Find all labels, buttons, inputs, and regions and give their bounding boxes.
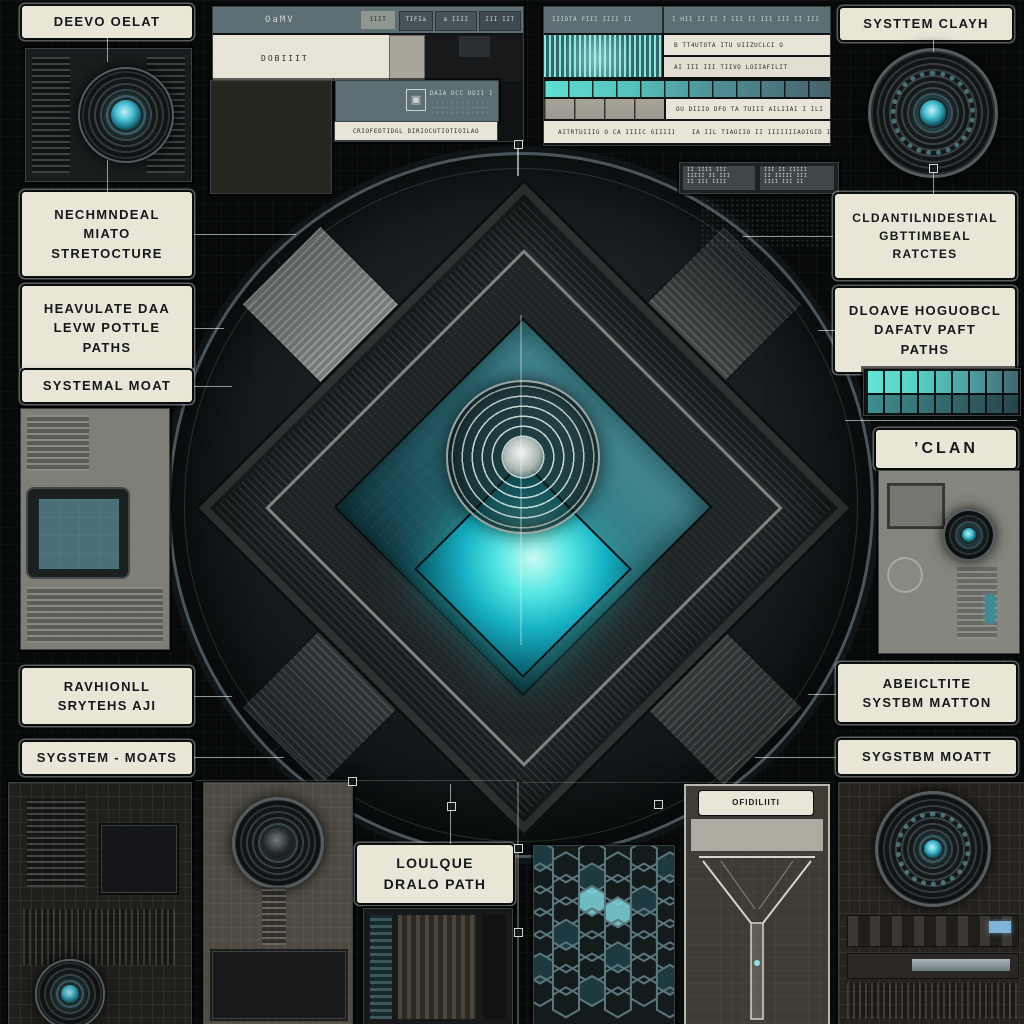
lens-icon	[35, 959, 105, 1024]
console-screen	[38, 498, 120, 570]
annotation-top-left: DEEVO OELAT	[22, 6, 192, 38]
axis-line	[520, 315, 522, 645]
callout-line	[107, 38, 108, 62]
lens-core-icon	[960, 526, 978, 544]
annotation-right-3: ABEICLTITE SYSTBM MATTON	[838, 664, 1016, 722]
hex-mesh-icon	[534, 846, 674, 1024]
chip-text: DAIA DCC DDII I	[430, 90, 492, 97]
central-ring	[168, 152, 874, 858]
callout-line	[107, 160, 108, 192]
annotation-text: OFIDILIITI	[699, 797, 813, 809]
circuit-board-module	[878, 470, 1020, 654]
module-tower	[32, 57, 70, 173]
panel-b-header-right: I HII II II I III II III III II III	[664, 7, 830, 33]
circuit-block	[889, 485, 943, 527]
annotation-text: SRYTEHS AJI	[22, 696, 192, 716]
annotation-text: SYSTEMAL MOAT	[22, 376, 192, 396]
machinery-block	[101, 825, 177, 893]
bottom-left-machinery	[8, 782, 192, 1024]
connector-marker	[348, 777, 357, 786]
callout-line	[755, 757, 836, 758]
light-bar	[912, 959, 1010, 971]
chip-grid-icon: ▣	[406, 89, 426, 111]
left-sensor-module	[25, 48, 192, 182]
machinery-bar-row	[847, 953, 1019, 979]
hex-mesh-panel	[533, 845, 675, 1024]
meter-row-bottom	[866, 395, 1018, 413]
sub-panel-cell: III II IIIII II IIIII III IIII III II	[760, 166, 834, 190]
annotation-text: DRALO PATH	[357, 874, 513, 895]
annotation-left-3: SYSTEMAL MOAT	[22, 370, 192, 402]
teal-meter-bar	[863, 368, 1021, 416]
panel-b-row4: AITRTUIIIG O CA IIIIC GIIIIII IA IIL TIA…	[544, 121, 830, 143]
annotation-text: SYGSTEM - MOATS	[22, 748, 192, 768]
large-lens-icon	[868, 48, 998, 178]
panel-a-footer-text: CRIOFEDTIDGL DIRIOCUTIOTIOILAO	[353, 128, 479, 135]
annotation-bottom-center: LOULQUE DRALO PATH	[357, 845, 513, 903]
callout-line	[808, 694, 836, 695]
annotation-text: DAFATV PAFT	[835, 320, 1015, 340]
annotation-text: CLDANTILNIDESTIAL	[835, 209, 1015, 227]
machinery-pipe	[262, 887, 286, 945]
annotation-text: RAVHIONLL	[22, 677, 192, 697]
lens-core-icon	[59, 983, 80, 1004]
gray-segmented-row	[544, 99, 664, 119]
callout-line	[818, 330, 835, 331]
annotation-text: PATHS	[22, 338, 192, 358]
citadel-hub-ring	[446, 380, 600, 534]
annotation-text: STRETOCTURE	[22, 244, 192, 264]
callout-line	[450, 784, 451, 844]
bottom-machinery-2	[203, 782, 353, 1024]
striped-column	[398, 915, 476, 1019]
lens-core-icon	[261, 826, 295, 860]
lens-core-icon	[109, 98, 144, 133]
lens-core-icon	[922, 838, 944, 860]
divider-line	[517, 782, 519, 1024]
ghost-port-icon	[887, 557, 923, 593]
callout-line	[194, 328, 224, 329]
sub-data-panel: II IIII III IIIII II III II III IIII III…	[679, 162, 839, 194]
funnel-diagram-icon	[691, 851, 823, 1023]
citadel-arm-ne-sw	[241, 225, 802, 786]
large-lens-icon	[875, 791, 991, 907]
bottom-center-machinery	[363, 908, 513, 1024]
callout-line	[743, 236, 833, 237]
annotation-text: RATCTES	[835, 245, 1015, 263]
header-cell: a IIII	[435, 11, 477, 31]
annotation-text: NECHMNDEAL	[22, 205, 192, 225]
machinery-block	[27, 799, 85, 887]
panel-a-row-label: DOBIIIT	[261, 54, 309, 63]
panel-a-footer-bar: CRIOFEDTIDGL DIRIOCUTIOTIOILAO	[335, 122, 497, 140]
annotation-right-4: SYGSTBM MOATT	[838, 740, 1016, 774]
panel-b-row3: OU DIIIO DFO TA TUIII AILIIAI I ILI	[666, 99, 830, 119]
dot-mesh-texture	[700, 198, 832, 248]
panel-a-gray-cells	[389, 35, 425, 81]
left-console-module	[20, 408, 170, 650]
annotation-text: GBTTIMBEAL	[835, 227, 1015, 245]
callout-line	[194, 386, 232, 387]
annotation-text: DEEVO OELAT	[22, 12, 192, 32]
teal-striped-column	[370, 915, 392, 1019]
panel-a-dark-cells	[425, 35, 523, 81]
striped-block	[210, 80, 332, 194]
annotation-left-5: SYGSTEM - MOATS	[22, 742, 192, 774]
funnel-blueprint-panel: OFIDILIITI	[686, 786, 828, 1024]
connector-marker	[514, 928, 523, 937]
connector-marker	[654, 800, 663, 809]
meter-row-top	[866, 371, 1018, 393]
panel-b-header-left: IIIDTA FIII IIII II	[544, 7, 664, 33]
funnel-header-ticks	[691, 819, 823, 851]
lens-core-icon	[918, 98, 948, 128]
annotation-text: DLOAVE HOGUOBCL	[835, 301, 1015, 321]
citadel-glass-deck	[333, 317, 712, 696]
connector-marker	[447, 802, 456, 811]
panel-a-title: OaMV	[265, 15, 295, 25]
callout-line	[194, 696, 232, 697]
sci-fi-citadel-diagram: DEEVO OELAT SYSTTEM CLAYH OaMV IIIT TIFI…	[0, 0, 1024, 1024]
citadel-rim-walkway	[265, 249, 783, 767]
annotation-text: ’CLAN	[876, 437, 1016, 461]
lens-icon	[78, 67, 174, 163]
panel-a-chip-strip: ▣ DAIA DCC DDII I	[335, 80, 499, 122]
machinery-grid	[847, 983, 1017, 1019]
sub-panel-cell: II IIII III IIIII II III II III IIII	[683, 166, 755, 190]
callout-line	[933, 40, 934, 52]
teal-indicator	[985, 595, 995, 623]
teal-gradient-row	[544, 81, 830, 97]
annotation-text: HEAVULATE DAA	[22, 299, 192, 319]
console-vent	[27, 415, 89, 471]
header-cell: TIFIa	[399, 11, 433, 31]
machinery-block	[23, 909, 175, 965]
annotation-left-4: RAVHIONLL SRYTEHS AJI	[22, 668, 192, 724]
hub-core	[503, 437, 543, 477]
annotation-text: PATHS	[835, 340, 1015, 360]
annotation-text: MIATO	[22, 224, 192, 244]
annotation-text: SYSTTEM CLAYH	[840, 14, 1012, 34]
annotation-top-right: SYSTTEM CLAYH	[840, 8, 1012, 40]
panel-a-header: OaMV IIIT TIFIa a IIII III IIT	[213, 7, 523, 33]
header-cell: III IIT	[479, 11, 521, 31]
panel-b-row1: B TT4UTOTA ITU UIIZUCLCI O	[664, 35, 830, 55]
panel-a-row: DOBIIIT	[213, 35, 389, 81]
callout-line	[194, 757, 284, 758]
annotation-text: SYSTBM MATTON	[838, 693, 1016, 713]
annotation-text: ABEICLTITE	[838, 674, 1016, 694]
connector-marker	[929, 164, 938, 173]
annotation-right-1: CLDANTILNIDESTIAL GBTTIMBEAL RATCTES	[835, 194, 1015, 278]
large-lens-icon	[232, 797, 324, 889]
annotation-text: LOULQUE	[357, 853, 513, 874]
connector-marker	[514, 844, 523, 853]
data-panel-b: IIIDTA FIII IIII II I HII II II I III II…	[543, 6, 831, 146]
funnel-tag: OFIDILIITI	[699, 791, 813, 815]
chip-dot-grid	[430, 100, 490, 114]
citadel-arm-nw-se	[241, 225, 802, 786]
small-lens-icon	[943, 509, 995, 561]
callout-line	[194, 234, 296, 235]
annotation-left-1: NECHMNDEAL MIATO STRETOCTURE	[22, 192, 192, 276]
connector-marker	[514, 140, 523, 149]
divider-line	[522, 782, 830, 783]
machinery-grid	[212, 951, 346, 1019]
citadel-outer-wall	[194, 178, 853, 837]
teal-striped-cell	[544, 35, 662, 77]
energy-pit	[414, 460, 632, 678]
blue-indicator	[989, 921, 1011, 933]
annotation-clan: ’CLAN	[876, 430, 1016, 468]
annotation-right-2: DLOAVE HOGUOBCL DAFATV PAFT PATHS	[835, 288, 1015, 372]
annotation-text: LEVW POTTLE	[22, 318, 192, 338]
panel-b-row2: AI III III TIIVO LOIIAFILIT	[664, 57, 830, 77]
dark-column	[482, 915, 506, 1019]
annotation-text: SYGSTBM MOATT	[838, 747, 1016, 767]
header-cell: IIIT	[361, 11, 395, 29]
dark-cell	[459, 36, 490, 57]
annotation-left-2: HEAVULATE DAA LEVW POTTLE PATHS	[22, 286, 192, 370]
console-screen-frame	[28, 489, 128, 577]
bottom-right-machinery	[838, 782, 1024, 1024]
callout-line	[845, 420, 1017, 421]
console-vent	[27, 587, 163, 643]
